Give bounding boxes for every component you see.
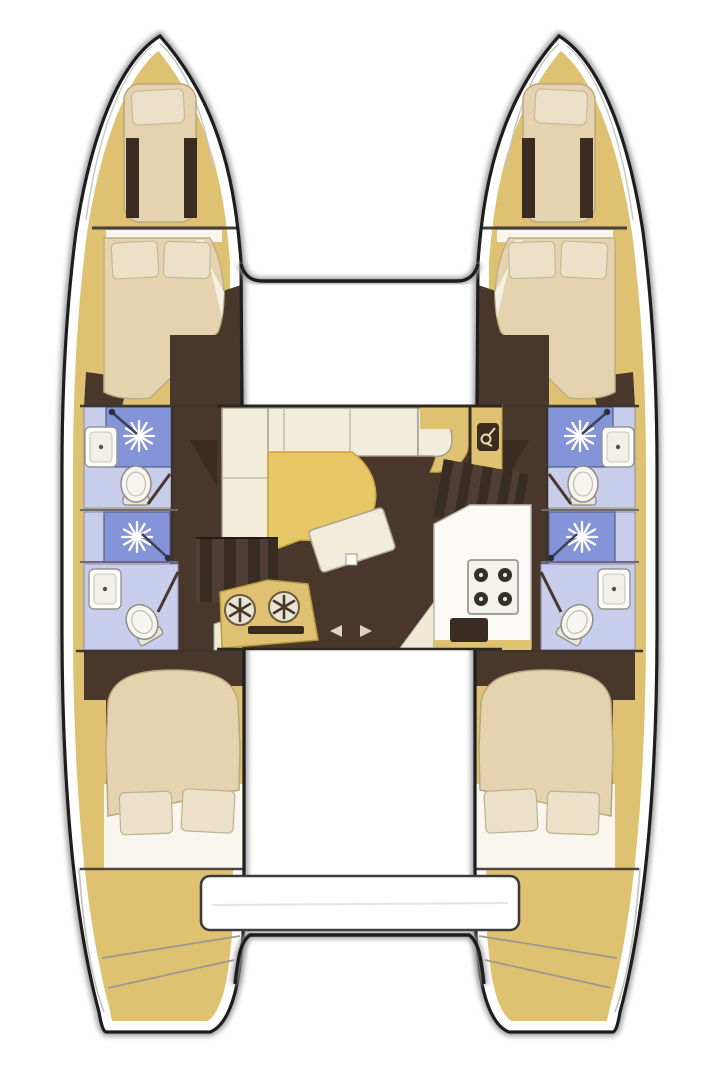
salon (190, 405, 531, 650)
forward-crossbeam (241, 264, 478, 281)
galley-basin (450, 618, 488, 642)
table-leg (346, 554, 357, 565)
floor-plan-page (0, 0, 719, 1080)
galley-sink-unit (214, 580, 318, 650)
oven-slot (248, 626, 304, 634)
faucet-icon (477, 423, 499, 451)
cockpit-floor-edge (235, 935, 484, 984)
stove (468, 560, 518, 614)
catamaran-floor-plan (0, 0, 719, 1080)
stern (201, 876, 519, 984)
